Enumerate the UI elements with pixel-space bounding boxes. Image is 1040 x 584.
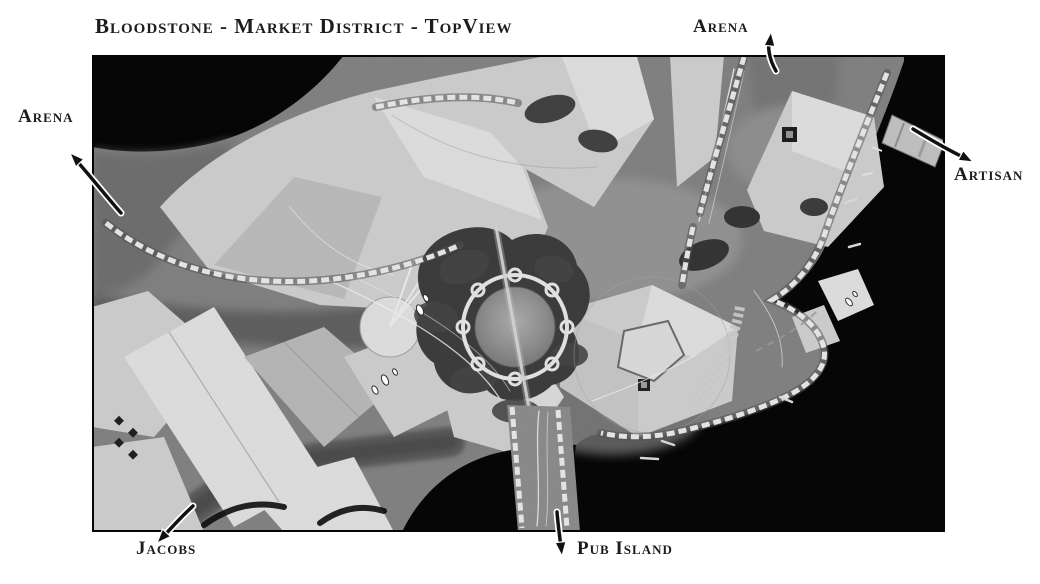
label-artisan: Artisan [954, 164, 1023, 186]
film-grain [92, 55, 945, 532]
label-jacobs: Jacobs [136, 538, 196, 560]
label-pub-island: Pub Island [577, 538, 673, 560]
page: Bloodstone - Market District - TopView [0, 0, 1040, 584]
map-render [92, 55, 945, 532]
label-arena-left: Arena [18, 106, 74, 128]
map-title: Bloodstone - Market District - TopView [95, 14, 512, 39]
district-render-image [92, 55, 945, 532]
label-arena-top: Arena [693, 16, 749, 38]
